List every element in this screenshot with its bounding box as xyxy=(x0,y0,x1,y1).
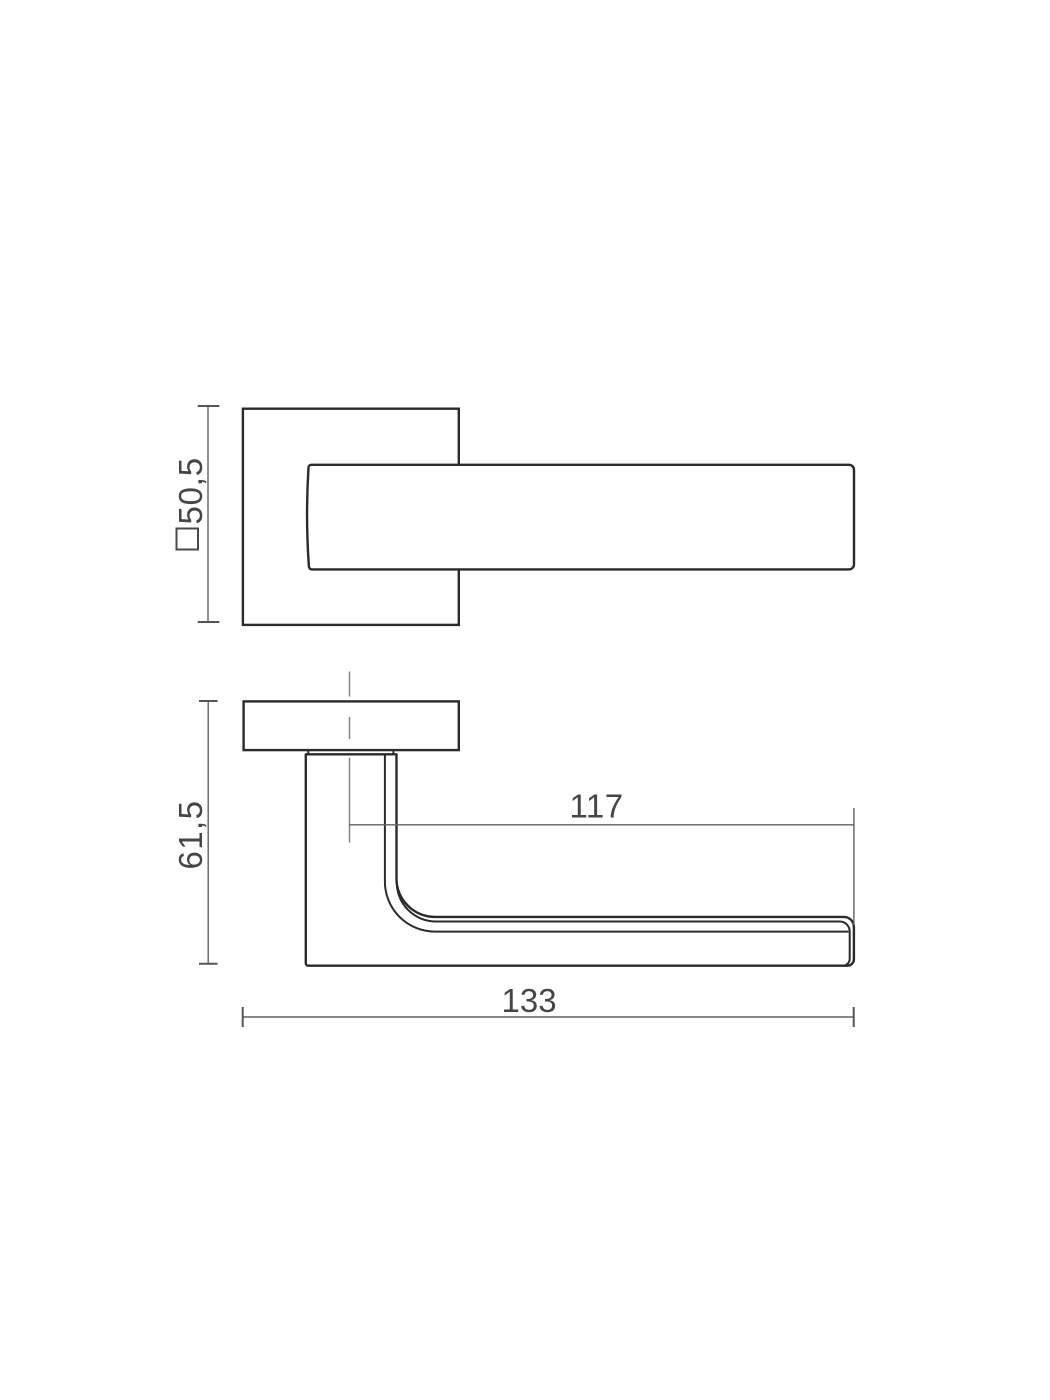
svg-text:117: 117 xyxy=(570,787,624,824)
svg-text:61,5: 61,5 xyxy=(172,800,209,870)
svg-text:133: 133 xyxy=(502,982,557,1019)
svg-text:50,5: 50,5 xyxy=(172,457,209,524)
